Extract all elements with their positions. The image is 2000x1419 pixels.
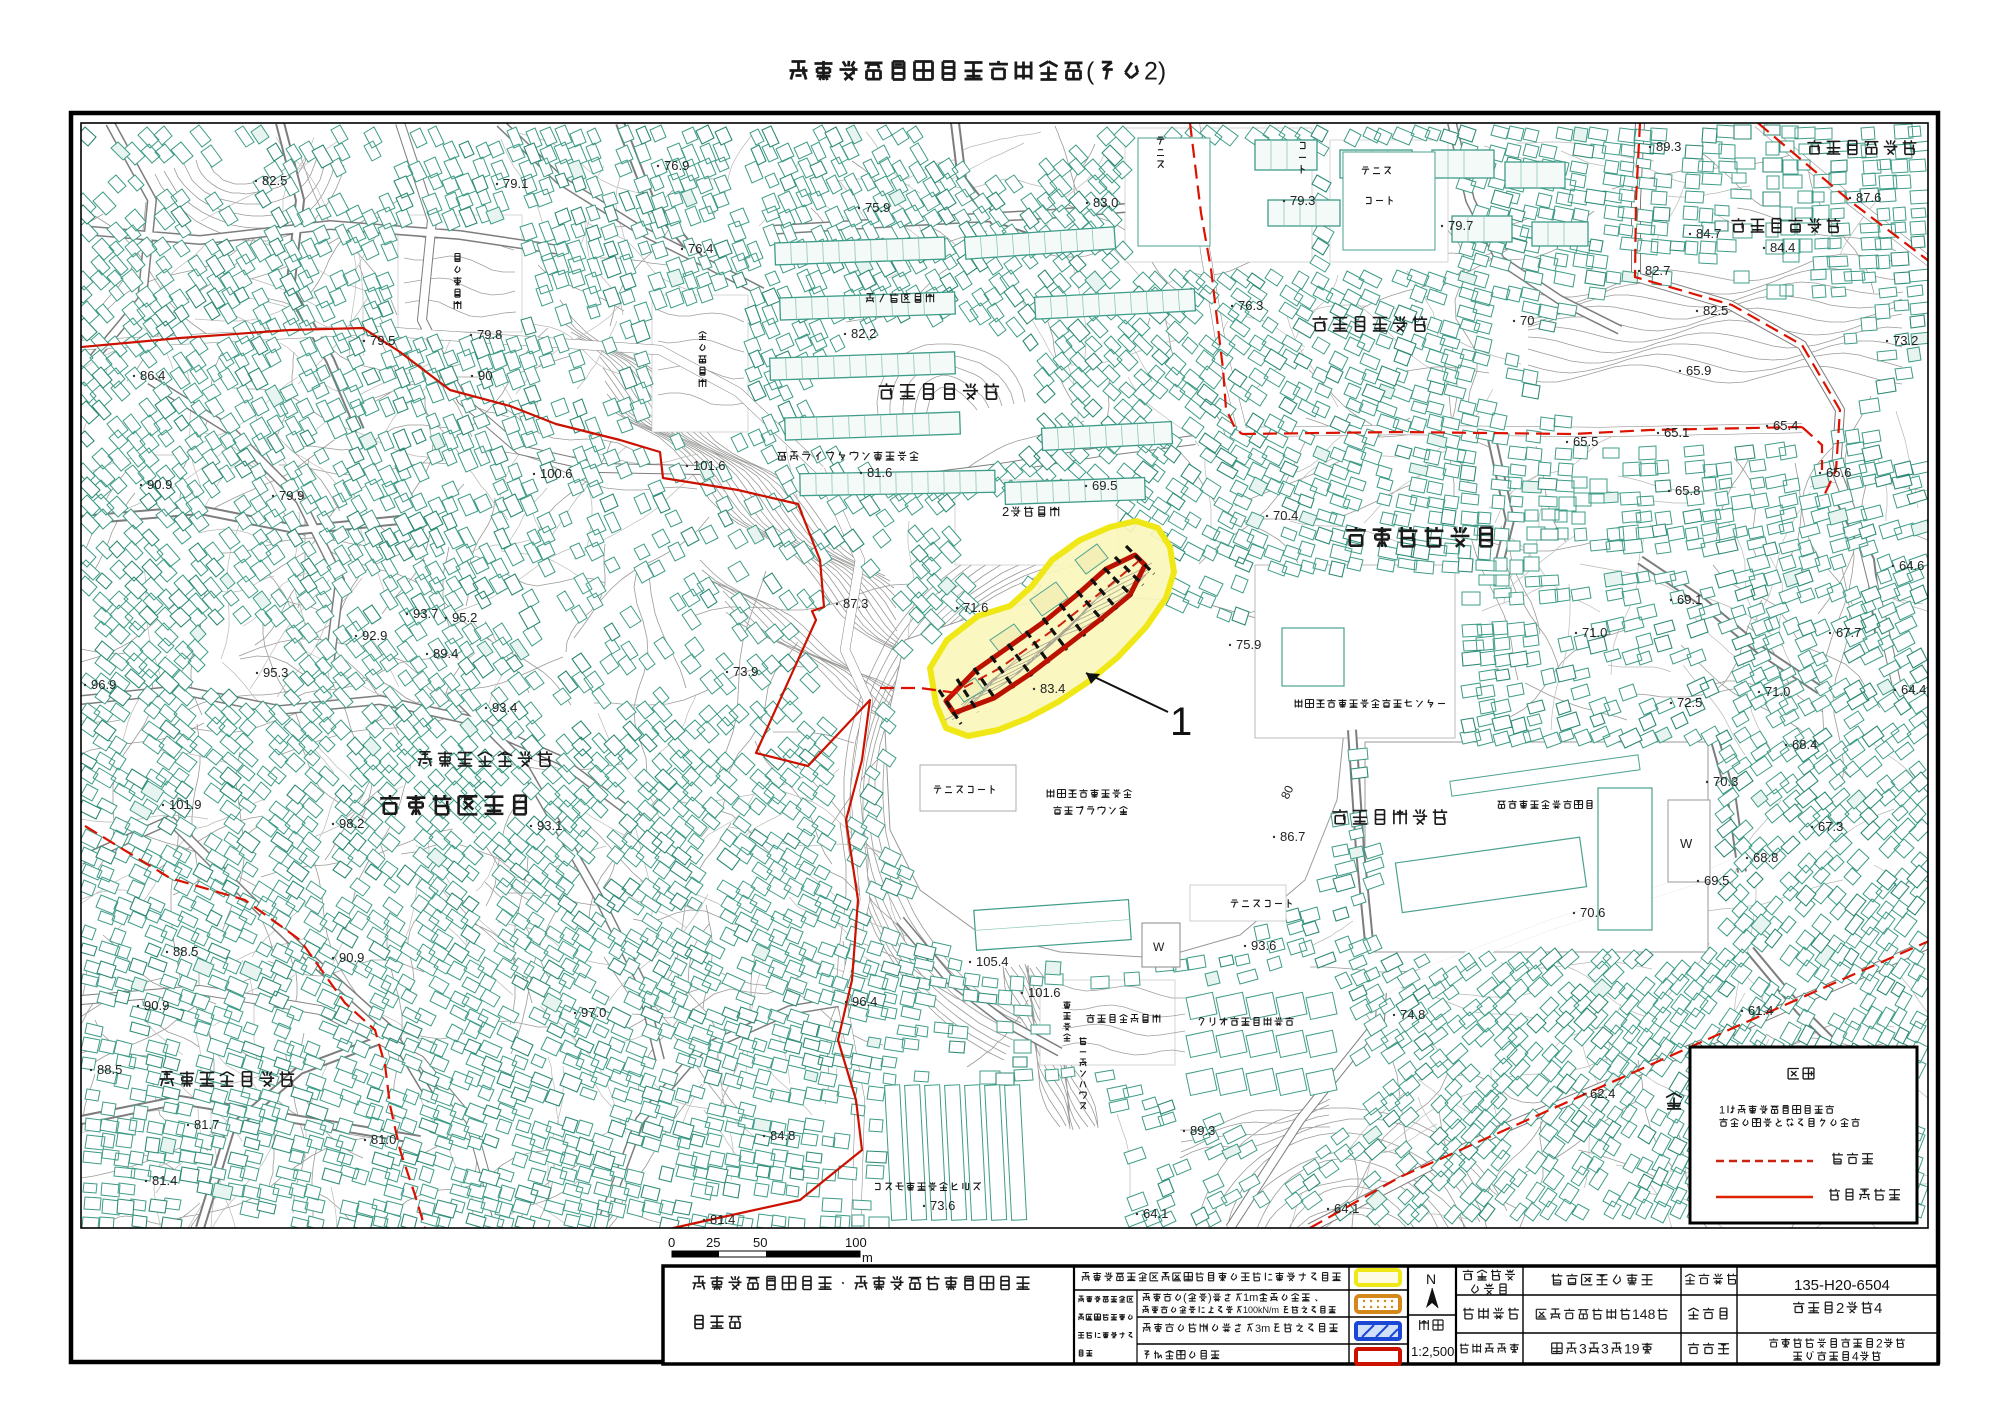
svg-text:79.5: 79.5 [370,333,395,348]
svg-text:98.2: 98.2 [339,816,364,831]
svg-text:50: 50 [753,1235,767,1250]
svg-text:90: 90 [478,368,492,383]
svg-text:97.0: 97.0 [581,1005,606,1020]
svg-text:79.7: 79.7 [1448,218,1473,233]
svg-text:81.6: 81.6 [867,465,892,480]
svg-text:73.2: 73.2 [1893,333,1918,348]
svg-text:84.7: 84.7 [1696,226,1721,241]
svg-text:75.9: 75.9 [1236,637,1261,652]
svg-text:82.7: 82.7 [1645,263,1670,278]
svg-text:67.3: 67.3 [1818,819,1843,834]
svg-text:3: 3 [1601,1341,1609,1357]
svg-text:93.7: 93.7 [413,606,438,621]
svg-text:70: 70 [1520,313,1534,328]
svg-text:101.6: 101.6 [1028,985,1061,1000]
svg-text:m: m [862,1250,873,1265]
svg-text:25: 25 [706,1235,720,1250]
svg-text:W: W [1153,940,1165,954]
svg-text:70.4: 70.4 [1273,508,1298,523]
svg-text:69.1: 69.1 [1677,592,1702,607]
svg-text:73.9: 73.9 [733,664,758,679]
svg-text:62.4: 62.4 [1590,1086,1615,1101]
svg-text:65.5: 65.5 [1573,434,1598,449]
svg-text:81.7: 81.7 [194,1117,219,1132]
svg-text:64.4: 64.4 [1901,682,1926,697]
svg-text:2): 2) [1144,58,1166,86]
svg-text:100: 100 [845,1235,867,1250]
svg-text:135-H20-6504: 135-H20-6504 [1794,1277,1890,1294]
svg-text:4: 4 [1852,1349,1859,1363]
svg-text:0: 0 [668,1235,675,1250]
svg-text:(: ( [1086,58,1095,86]
svg-text:82.5: 82.5 [262,173,287,188]
svg-text:93.4: 93.4 [492,700,517,715]
svg-text:1m: 1m [1243,1292,1258,1304]
svg-text:105.4: 105.4 [976,954,1009,969]
svg-text:95.2: 95.2 [452,610,477,625]
svg-text:86.4: 86.4 [140,368,165,383]
svg-text:2: 2 [1002,504,1009,519]
svg-text:65.6: 65.6 [1826,465,1851,480]
svg-text:84.8: 84.8 [770,1128,795,1143]
svg-text:74.8: 74.8 [1400,1007,1425,1022]
svg-text:3: 3 [1579,1341,1587,1357]
svg-text:88.5: 88.5 [97,1062,122,1077]
svg-text:90.9: 90.9 [144,998,169,1013]
svg-text:82.5: 82.5 [1703,303,1728,318]
svg-text:100kN/m: 100kN/m [1243,1305,1279,1315]
svg-text:84.4: 84.4 [1770,240,1795,255]
svg-text:72.5: 72.5 [1677,695,1702,710]
svg-text:69.5: 69.5 [1704,873,1729,888]
svg-text:83.0: 83.0 [1093,195,1118,210]
svg-text:65.8: 65.8 [1675,483,1700,498]
svg-text:65.1: 65.1 [1664,425,1689,440]
svg-text:100.6: 100.6 [540,466,573,481]
svg-text:88.5: 88.5 [173,944,198,959]
svg-text:76.4: 76.4 [688,241,713,256]
svg-text:2: 2 [1876,1336,1883,1350]
svg-text:1: 1 [1170,700,1192,744]
svg-text:93.6: 93.6 [1251,938,1276,953]
svg-text:79.8: 79.8 [477,327,502,342]
svg-text:68.4: 68.4 [1792,737,1817,752]
svg-text:61.4: 61.4 [1748,1003,1773,1018]
svg-text:79.9: 79.9 [279,488,304,503]
svg-text:71.0: 71.0 [1765,684,1790,699]
svg-text:96.4: 96.4 [852,994,877,1009]
svg-text:83.4: 83.4 [1040,681,1065,696]
svg-text:82.2: 82.2 [851,326,876,341]
svg-text:79.3: 79.3 [1290,193,1315,208]
svg-text:92.9: 92.9 [362,628,387,643]
svg-text:87.6: 87.6 [1856,190,1881,205]
svg-text:3m: 3m [1255,1323,1270,1335]
svg-text:89.3: 89.3 [1656,139,1681,154]
svg-text:148: 148 [1632,1306,1656,1322]
svg-text:93.1: 93.1 [537,818,562,833]
svg-text:W: W [1680,836,1693,851]
svg-text:65.9: 65.9 [1686,363,1711,378]
svg-text:1:2,500: 1:2,500 [1411,1344,1454,1359]
svg-text:79.1: 79.1 [503,176,528,191]
svg-text:101.9: 101.9 [169,797,202,812]
svg-text:95.3: 95.3 [263,665,288,680]
svg-text:75.9: 75.9 [865,200,890,215]
svg-text:64.6: 64.6 [1899,558,1924,573]
svg-text:101.6: 101.6 [693,458,726,473]
svg-text:70.3: 70.3 [1713,774,1738,789]
svg-text:2: 2 [1836,1300,1844,1317]
svg-text:87.3: 87.3 [843,596,868,611]
svg-text:70.6: 70.6 [1580,905,1605,920]
svg-text:69.5: 69.5 [1092,478,1117,493]
svg-text:89.4: 89.4 [433,646,458,661]
svg-text:73.6: 73.6 [930,1198,955,1213]
svg-text:64.1: 64.1 [1143,1206,1168,1221]
svg-text:90.9: 90.9 [339,950,364,965]
svg-text:89.3: 89.3 [1190,1123,1215,1138]
svg-text:64.1: 64.1 [1334,1201,1359,1216]
svg-text:1: 1 [1719,1105,1725,1117]
svg-text:N: N [1426,1271,1436,1287]
svg-text:65.4: 65.4 [1773,418,1798,433]
svg-text:67.7: 67.7 [1836,625,1861,640]
svg-text:90.9: 90.9 [147,477,172,492]
svg-text:81.4: 81.4 [152,1173,177,1188]
svg-text:86.7: 86.7 [1280,829,1305,844]
svg-text:68.8: 68.8 [1753,850,1778,865]
svg-text:): ) [1208,1292,1212,1304]
svg-text:(: ( [1183,1292,1187,1304]
svg-text:71.0: 71.0 [1582,625,1607,640]
svg-text:96.9: 96.9 [91,677,116,692]
svg-text:76.9: 76.9 [664,158,689,173]
svg-text:81.0: 81.0 [371,1132,396,1147]
svg-text:76.3: 76.3 [1238,298,1263,313]
svg-text:4: 4 [1874,1300,1882,1317]
svg-text:19: 19 [1624,1341,1640,1357]
svg-text:71.6: 71.6 [963,600,988,615]
svg-text:81.4: 81.4 [710,1212,735,1227]
